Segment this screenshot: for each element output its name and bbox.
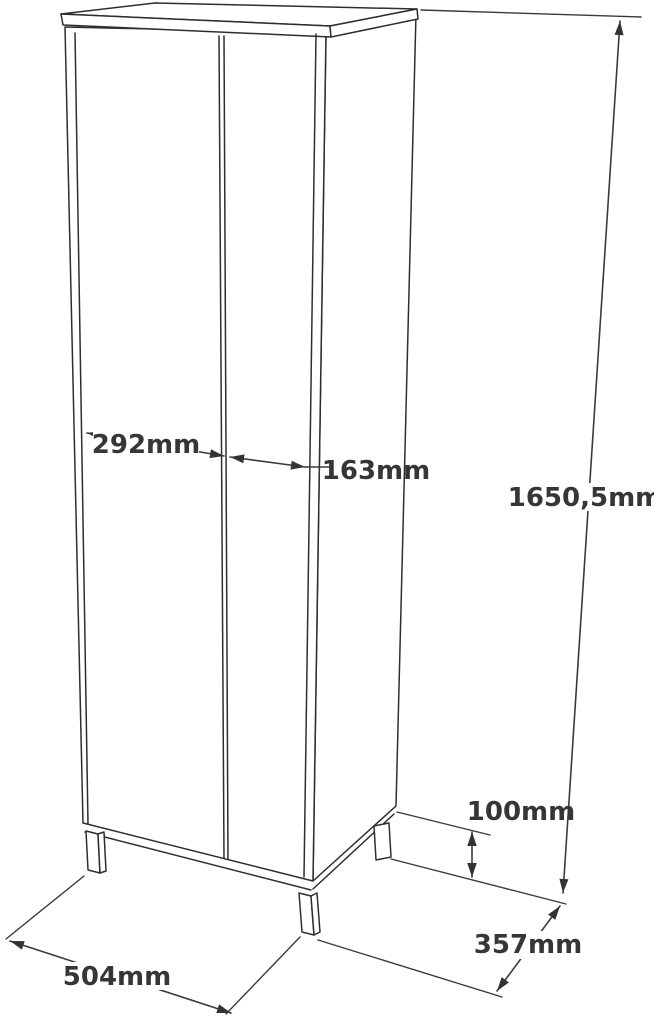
floor-level-extension-line (391, 859, 566, 904)
right-door-width-label: 163mm (322, 456, 430, 486)
depth-arrow-top-icon (548, 906, 560, 920)
height-top-extension-line (421, 10, 641, 17)
total-height-label: 1650,5mm (508, 483, 654, 513)
depth-arrow-bottom-icon (497, 977, 509, 991)
total-depth-label: 357mm (474, 930, 582, 960)
width-right-extension-line (226, 937, 300, 1014)
front-left-leg-side (98, 832, 106, 873)
diagram-canvas: 292mm 163mm 1650,5mm 100mm 504mm 357mm (0, 0, 654, 1020)
total-width-label: 504mm (63, 962, 171, 992)
width-arrow-right-icon (216, 1004, 231, 1013)
back-right-leg (374, 823, 391, 860)
cabinet-right-side-face (313, 14, 416, 881)
height-dimension-line (563, 21, 620, 893)
leg-height-arrow-top-icon (467, 832, 477, 846)
leg-height-label: 100mm (467, 797, 575, 827)
width-arrow-left-icon (10, 941, 25, 950)
width-left-extension-line (6, 876, 84, 939)
left-door-width-label: 292mm (92, 430, 200, 460)
leg-height-arrow-bottom-icon (467, 863, 477, 877)
cabinet-dimension-diagram: 292mm 163mm 1650,5mm 100mm 504mm 357mm (0, 0, 654, 1020)
